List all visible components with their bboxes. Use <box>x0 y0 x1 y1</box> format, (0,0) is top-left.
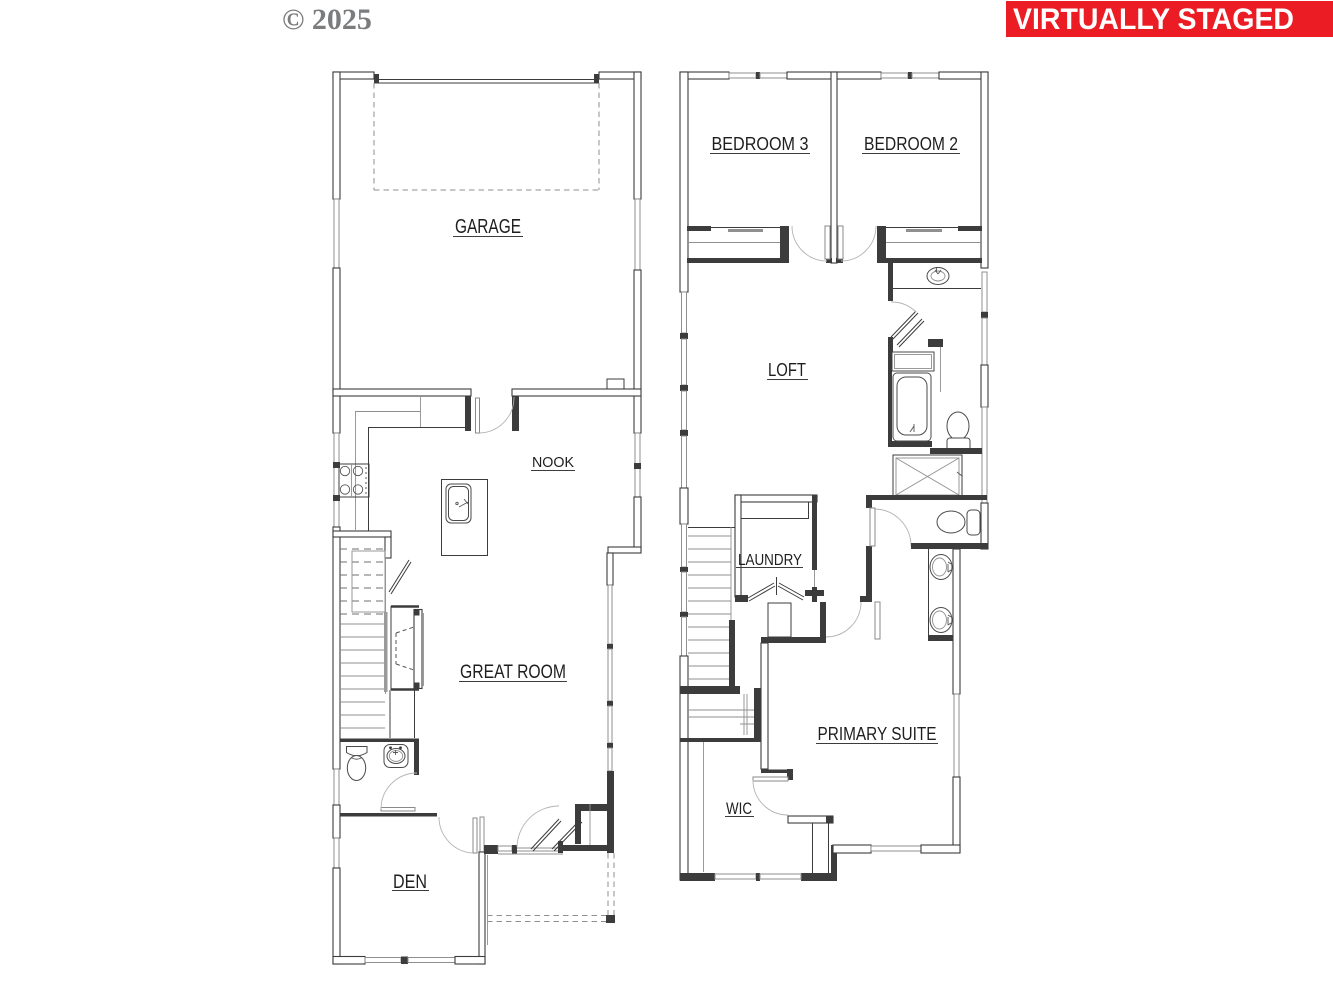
svg-text:LAUNDRY: LAUNDRY <box>738 552 802 569</box>
svg-text:NOOK: NOOK <box>532 455 574 471</box>
svg-text:GREAT ROOM: GREAT ROOM <box>460 662 566 683</box>
svg-text:PRIMARY SUITE: PRIMARY SUITE <box>818 724 937 744</box>
svg-text:GARAGE: GARAGE <box>455 216 521 238</box>
svg-text:BEDROOM 3: BEDROOM 3 <box>712 134 809 154</box>
svg-text:LOFT: LOFT <box>768 360 806 380</box>
svg-text:© 2025: © 2025 <box>282 3 372 36</box>
svg-text:WIC: WIC <box>726 799 752 818</box>
svg-text:VIRTUALLY STAGED: VIRTUALLY STAGED <box>1013 3 1294 36</box>
svg-text:DEN: DEN <box>393 872 427 893</box>
svg-text:BEDROOM 2: BEDROOM 2 <box>864 134 958 154</box>
